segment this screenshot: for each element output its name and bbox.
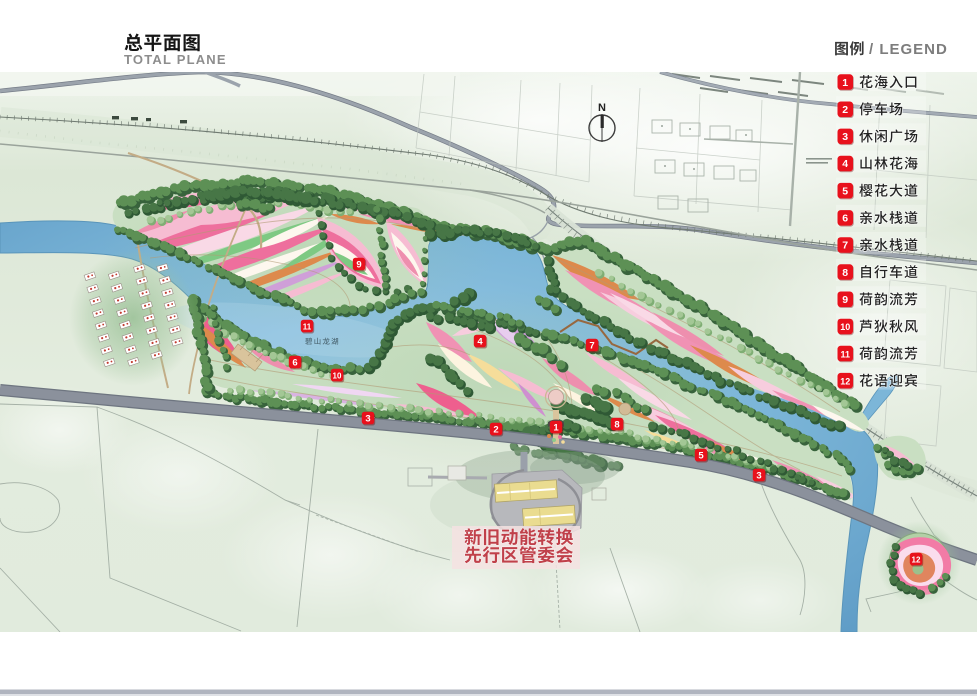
svg-text:4: 4 [477, 336, 483, 347]
svg-text:/ LEGEND: / LEGEND [869, 41, 948, 58]
svg-text:11: 11 [840, 349, 850, 359]
svg-text:1: 1 [842, 77, 848, 89]
svg-text:3: 3 [756, 470, 761, 481]
svg-text:2: 2 [842, 104, 848, 116]
svg-text:1: 1 [553, 422, 559, 433]
svg-text:5: 5 [698, 450, 704, 461]
svg-text:8: 8 [842, 267, 848, 279]
svg-text:7: 7 [842, 240, 848, 252]
svg-text:7: 7 [589, 340, 594, 351]
svg-text:3: 3 [365, 413, 370, 424]
svg-text:2: 2 [493, 424, 498, 435]
svg-text:11: 11 [303, 322, 312, 331]
svg-text:9: 9 [842, 294, 848, 306]
svg-text:12: 12 [840, 376, 850, 386]
svg-text:8: 8 [614, 419, 619, 430]
svg-text:4: 4 [842, 158, 848, 170]
svg-text:6: 6 [842, 213, 848, 225]
svg-text:5: 5 [842, 185, 848, 197]
svg-text:TOTAL PLANE: TOTAL PLANE [124, 52, 227, 67]
svg-text:9: 9 [356, 259, 361, 270]
svg-text:N: N [598, 102, 606, 114]
svg-text:3: 3 [842, 131, 848, 143]
svg-text:12: 12 [912, 555, 921, 564]
svg-text:10: 10 [333, 371, 342, 380]
svg-text:6: 6 [292, 357, 297, 368]
svg-text:10: 10 [840, 322, 850, 332]
